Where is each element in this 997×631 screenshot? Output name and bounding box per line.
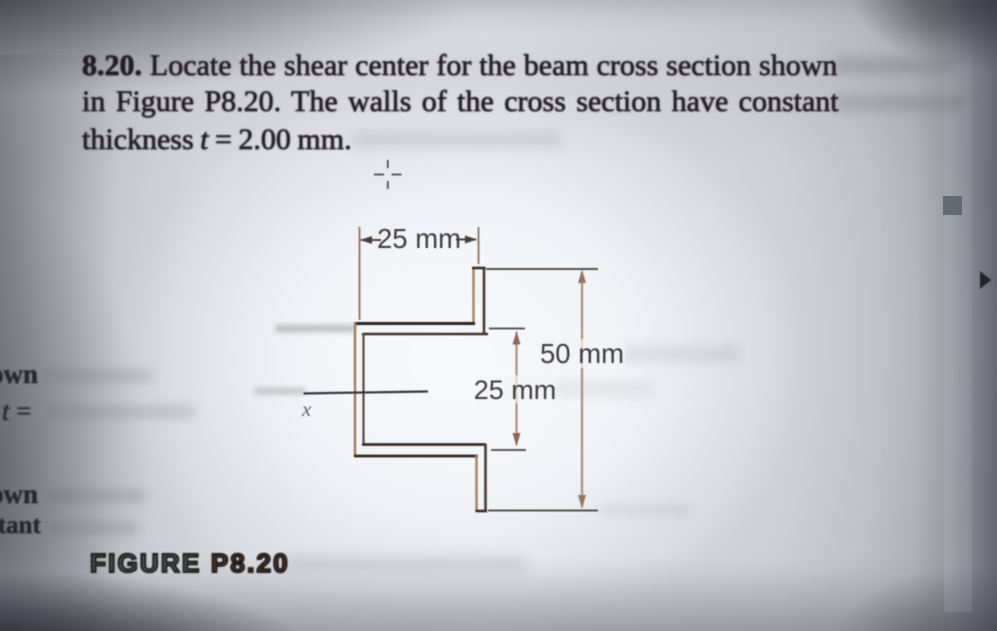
- svg-text:25 mm: 25 mm: [474, 375, 557, 405]
- svg-text:25 mm: 25 mm: [377, 223, 461, 254]
- svg-text:50 mm: 50 mm: [540, 338, 624, 369]
- svg-text:x: x: [301, 397, 312, 421]
